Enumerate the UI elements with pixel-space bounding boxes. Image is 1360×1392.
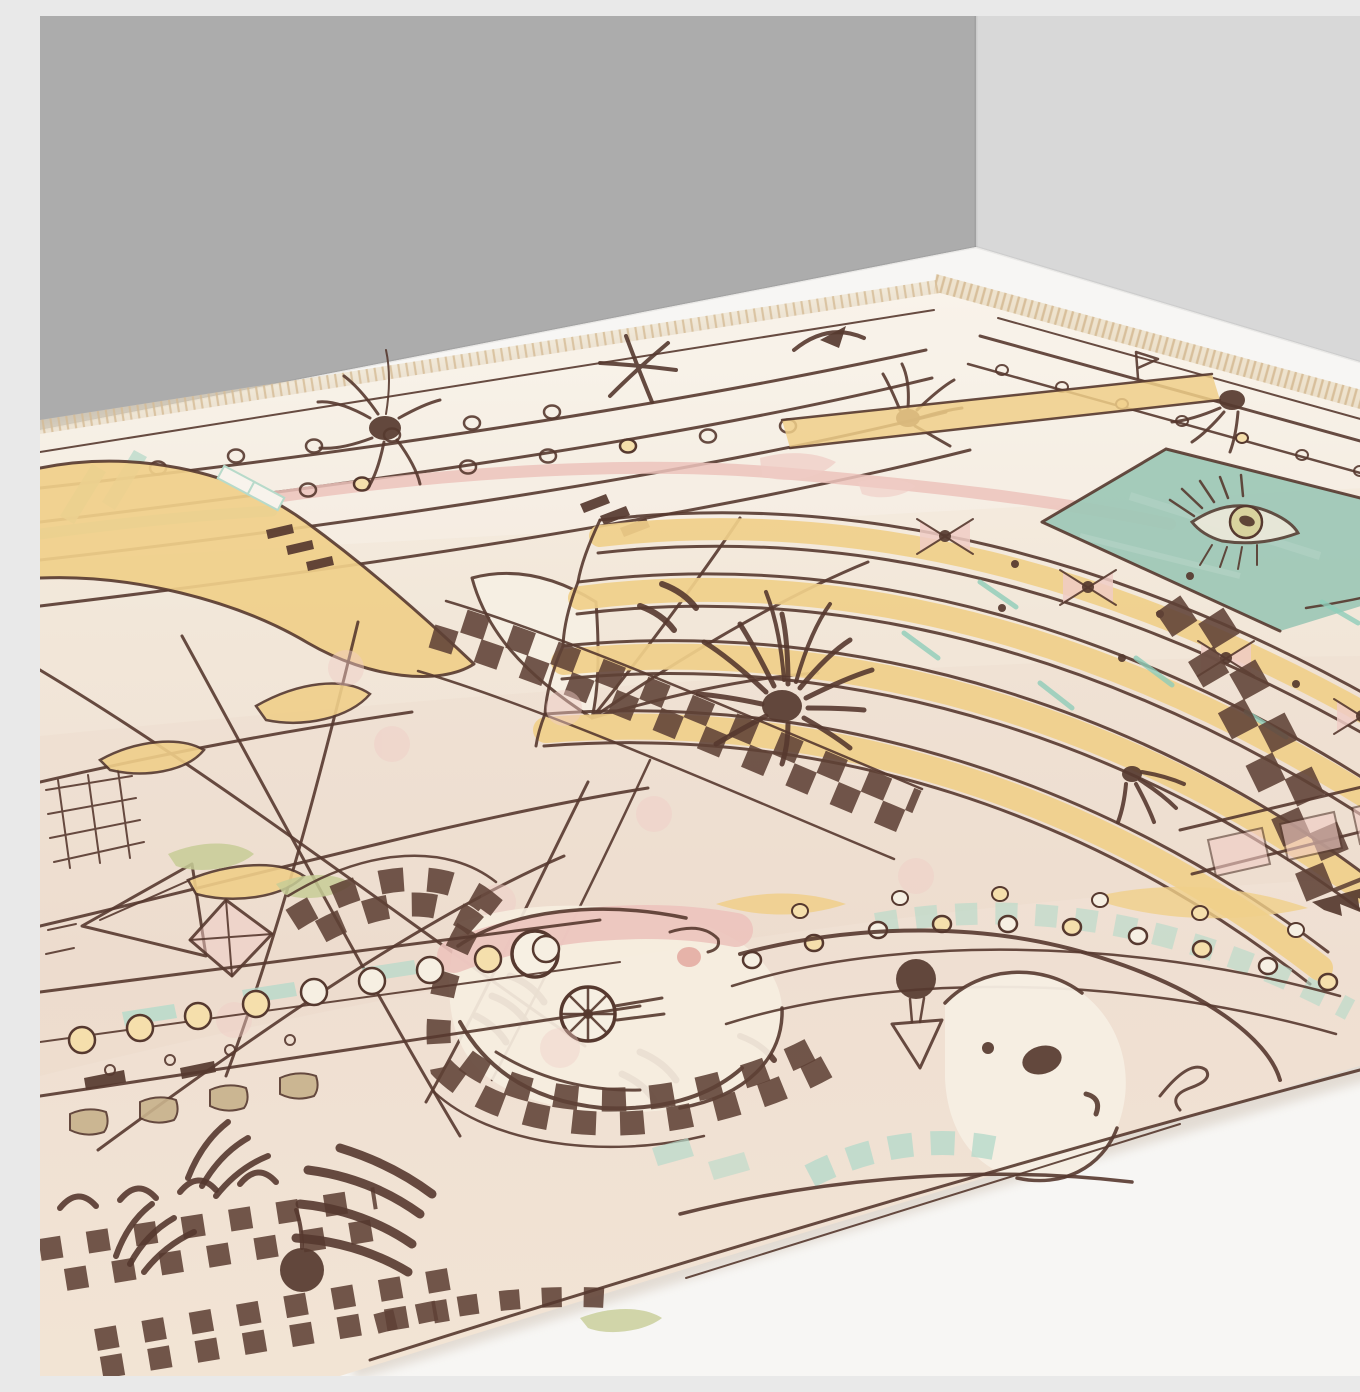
product-photo-rug-in-corner: Abstract hand-drawn wool rug photographe… [40,16,1360,1376]
photo-canvas [40,16,1360,1376]
pink-eye-dot [677,947,701,967]
pompom-dot [280,1248,324,1292]
